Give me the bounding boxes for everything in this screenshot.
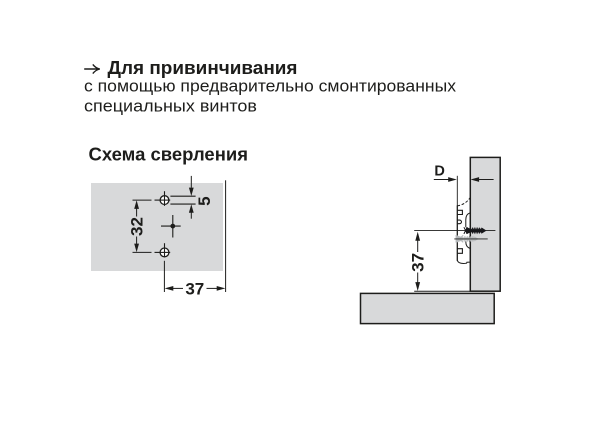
svg-text:D: D bbox=[434, 164, 444, 180]
svg-text:Схема сверления: Схема сверления bbox=[89, 145, 249, 165]
svg-text:37: 37 bbox=[409, 253, 428, 272]
svg-text:специальных винтов: специальных винтов bbox=[84, 97, 257, 115]
svg-text:37: 37 bbox=[185, 280, 204, 299]
svg-text:с помощью предварительно смонт: с помощью предварительно смонтированных bbox=[84, 78, 457, 96]
svg-text:Для привинчивания: Для привинчивания bbox=[108, 58, 298, 78]
svg-text:32: 32 bbox=[127, 217, 146, 236]
svg-text:5: 5 bbox=[195, 196, 214, 205]
